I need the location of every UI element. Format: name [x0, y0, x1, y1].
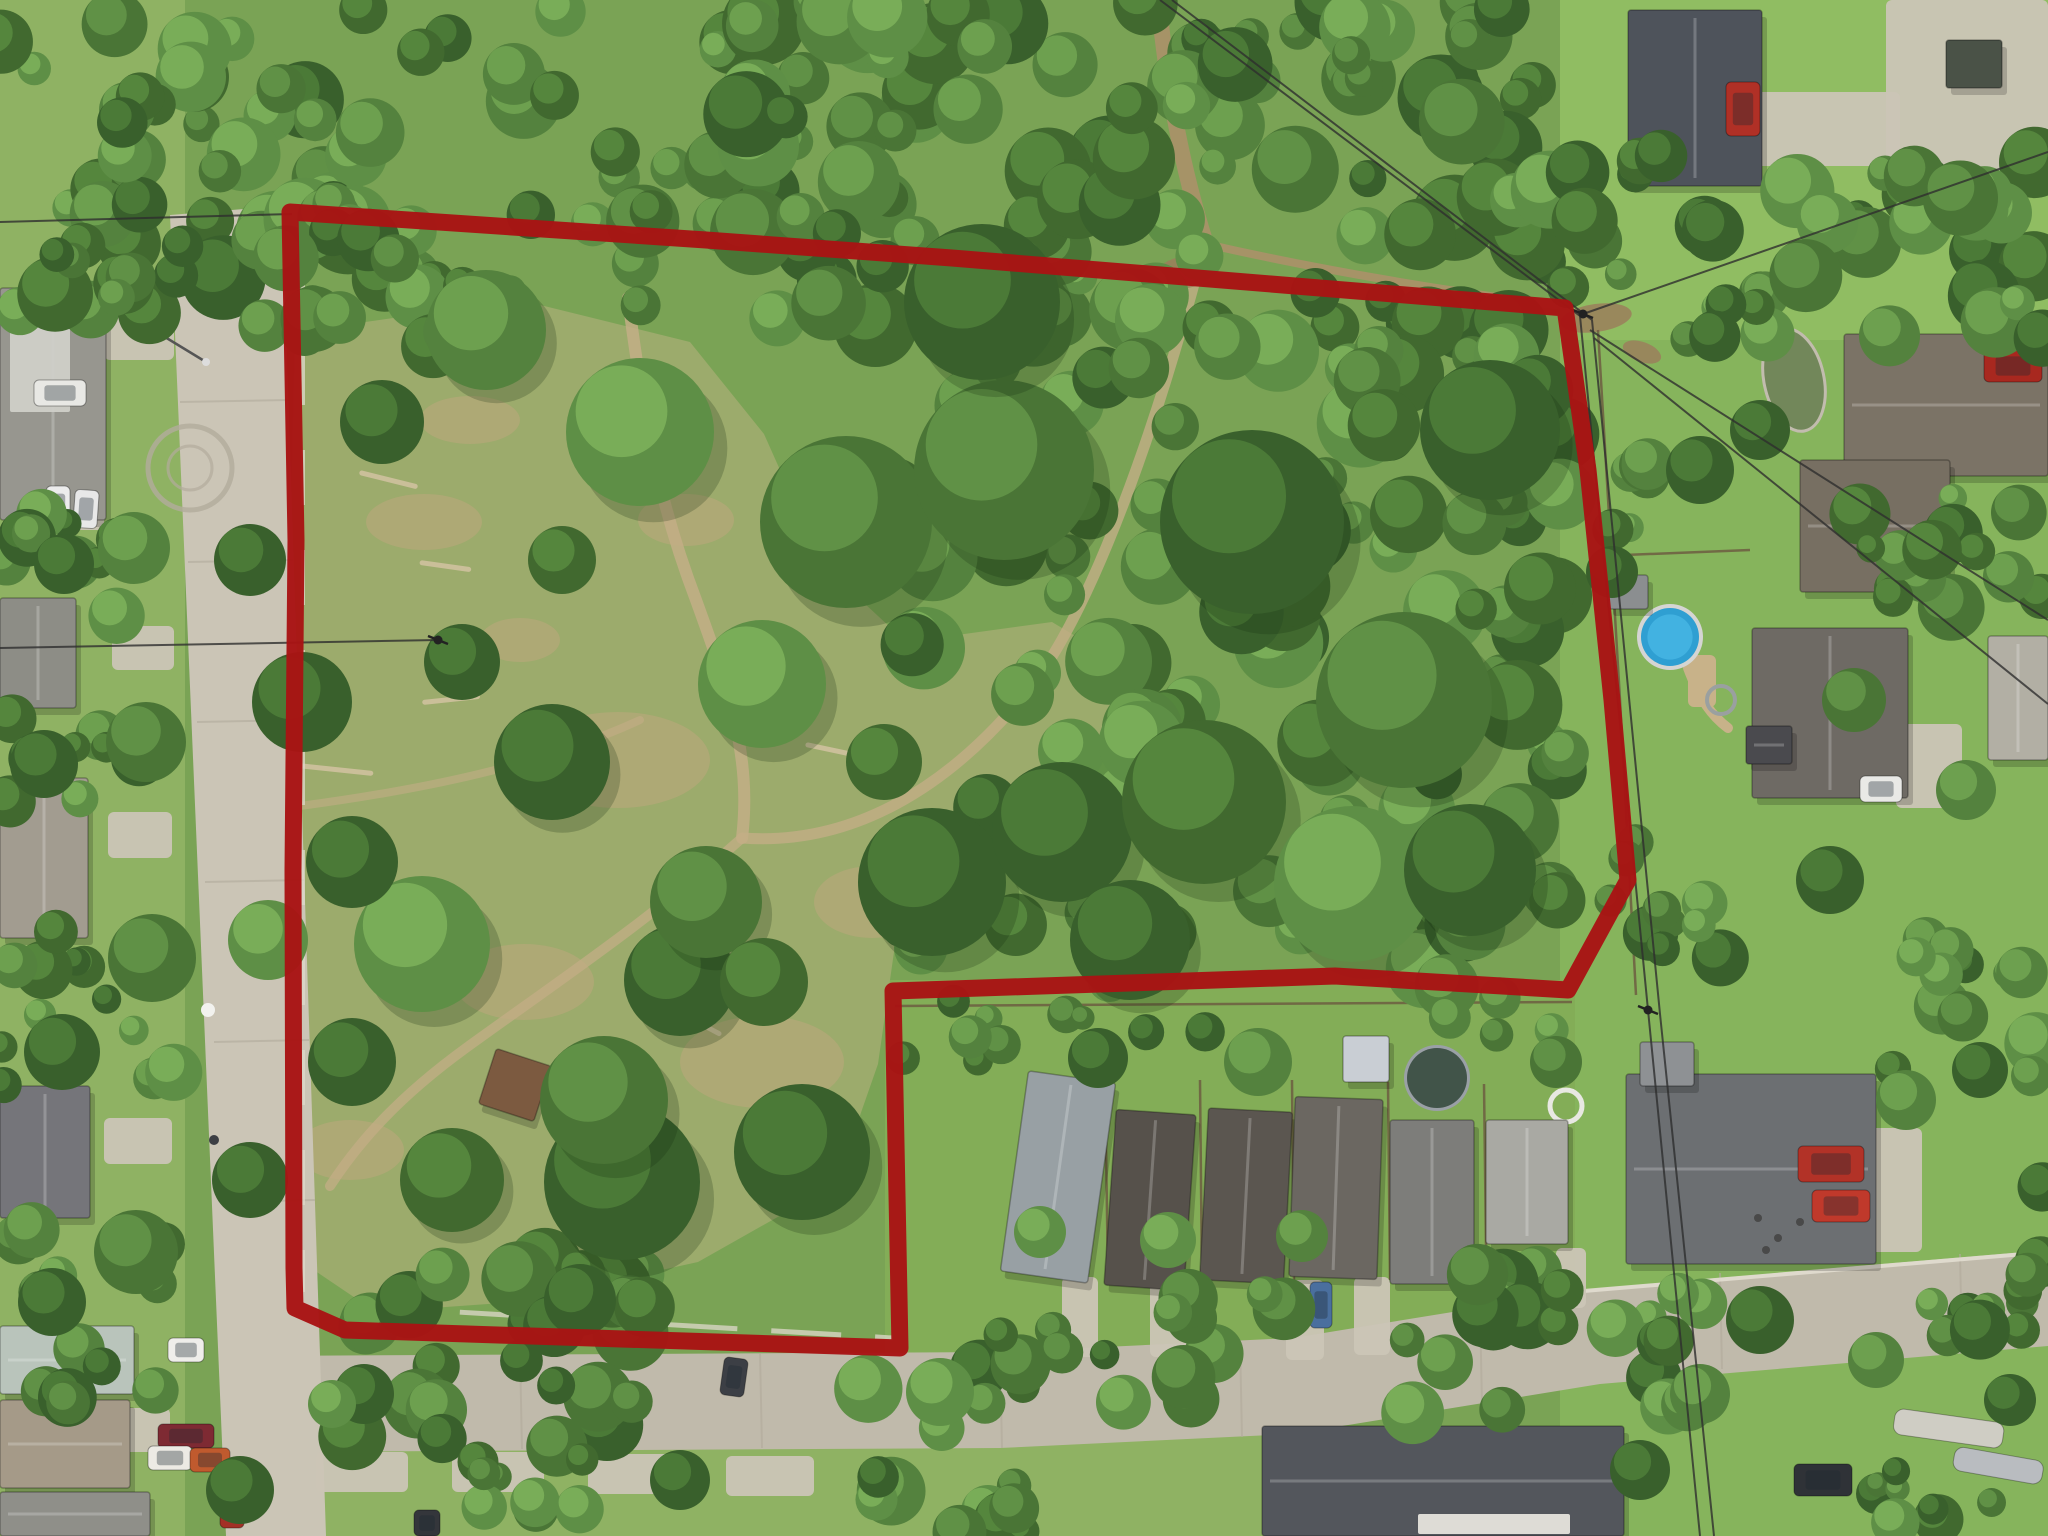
aerial-photo-canvas: [0, 0, 2048, 1536]
aerial-photo: [0, 0, 2048, 1536]
